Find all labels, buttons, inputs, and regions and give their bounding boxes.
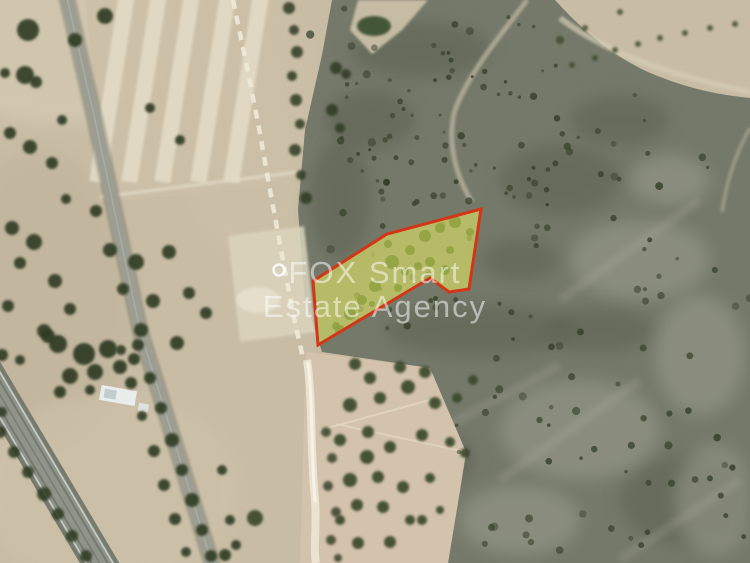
plot-highlight-layer	[0, 0, 750, 563]
satellite-image: FOX Smart Estate Agency	[0, 0, 750, 563]
